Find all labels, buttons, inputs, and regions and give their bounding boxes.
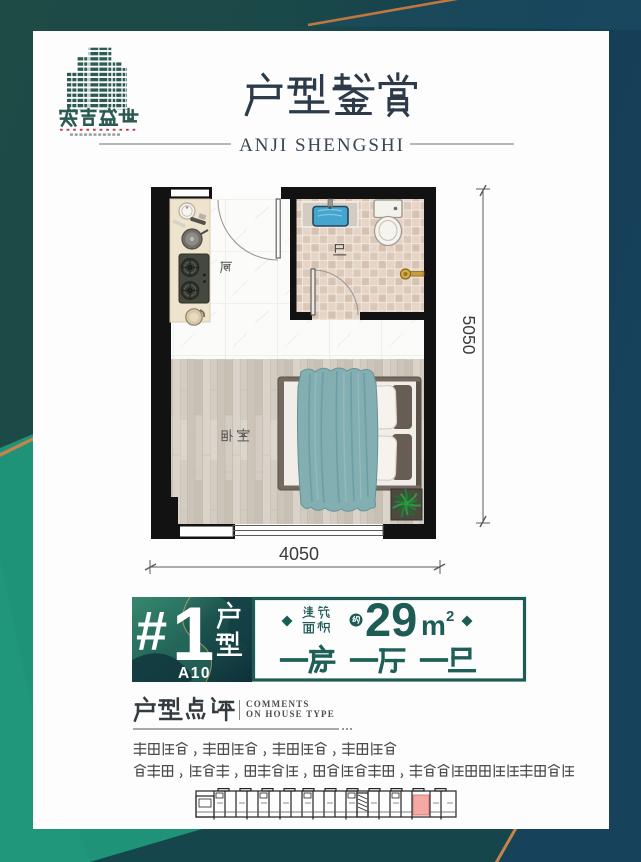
svg-text:#: #: [136, 599, 167, 662]
svg-text:m: m: [421, 610, 446, 641]
svg-text:COMMENTS: COMMENTS: [246, 699, 310, 709]
svg-text:4050: 4050: [279, 544, 319, 564]
svg-text:ON HOUSE TYPE: ON HOUSE TYPE: [246, 709, 335, 719]
svg-text:ANJI SHENGSHI: ANJI SHENGSHI: [239, 135, 405, 156]
svg-text:29: 29: [365, 593, 417, 646]
svg-text:2: 2: [446, 608, 454, 625]
svg-text:5050: 5050: [459, 316, 479, 355]
svg-text:A10: A10: [178, 665, 211, 682]
